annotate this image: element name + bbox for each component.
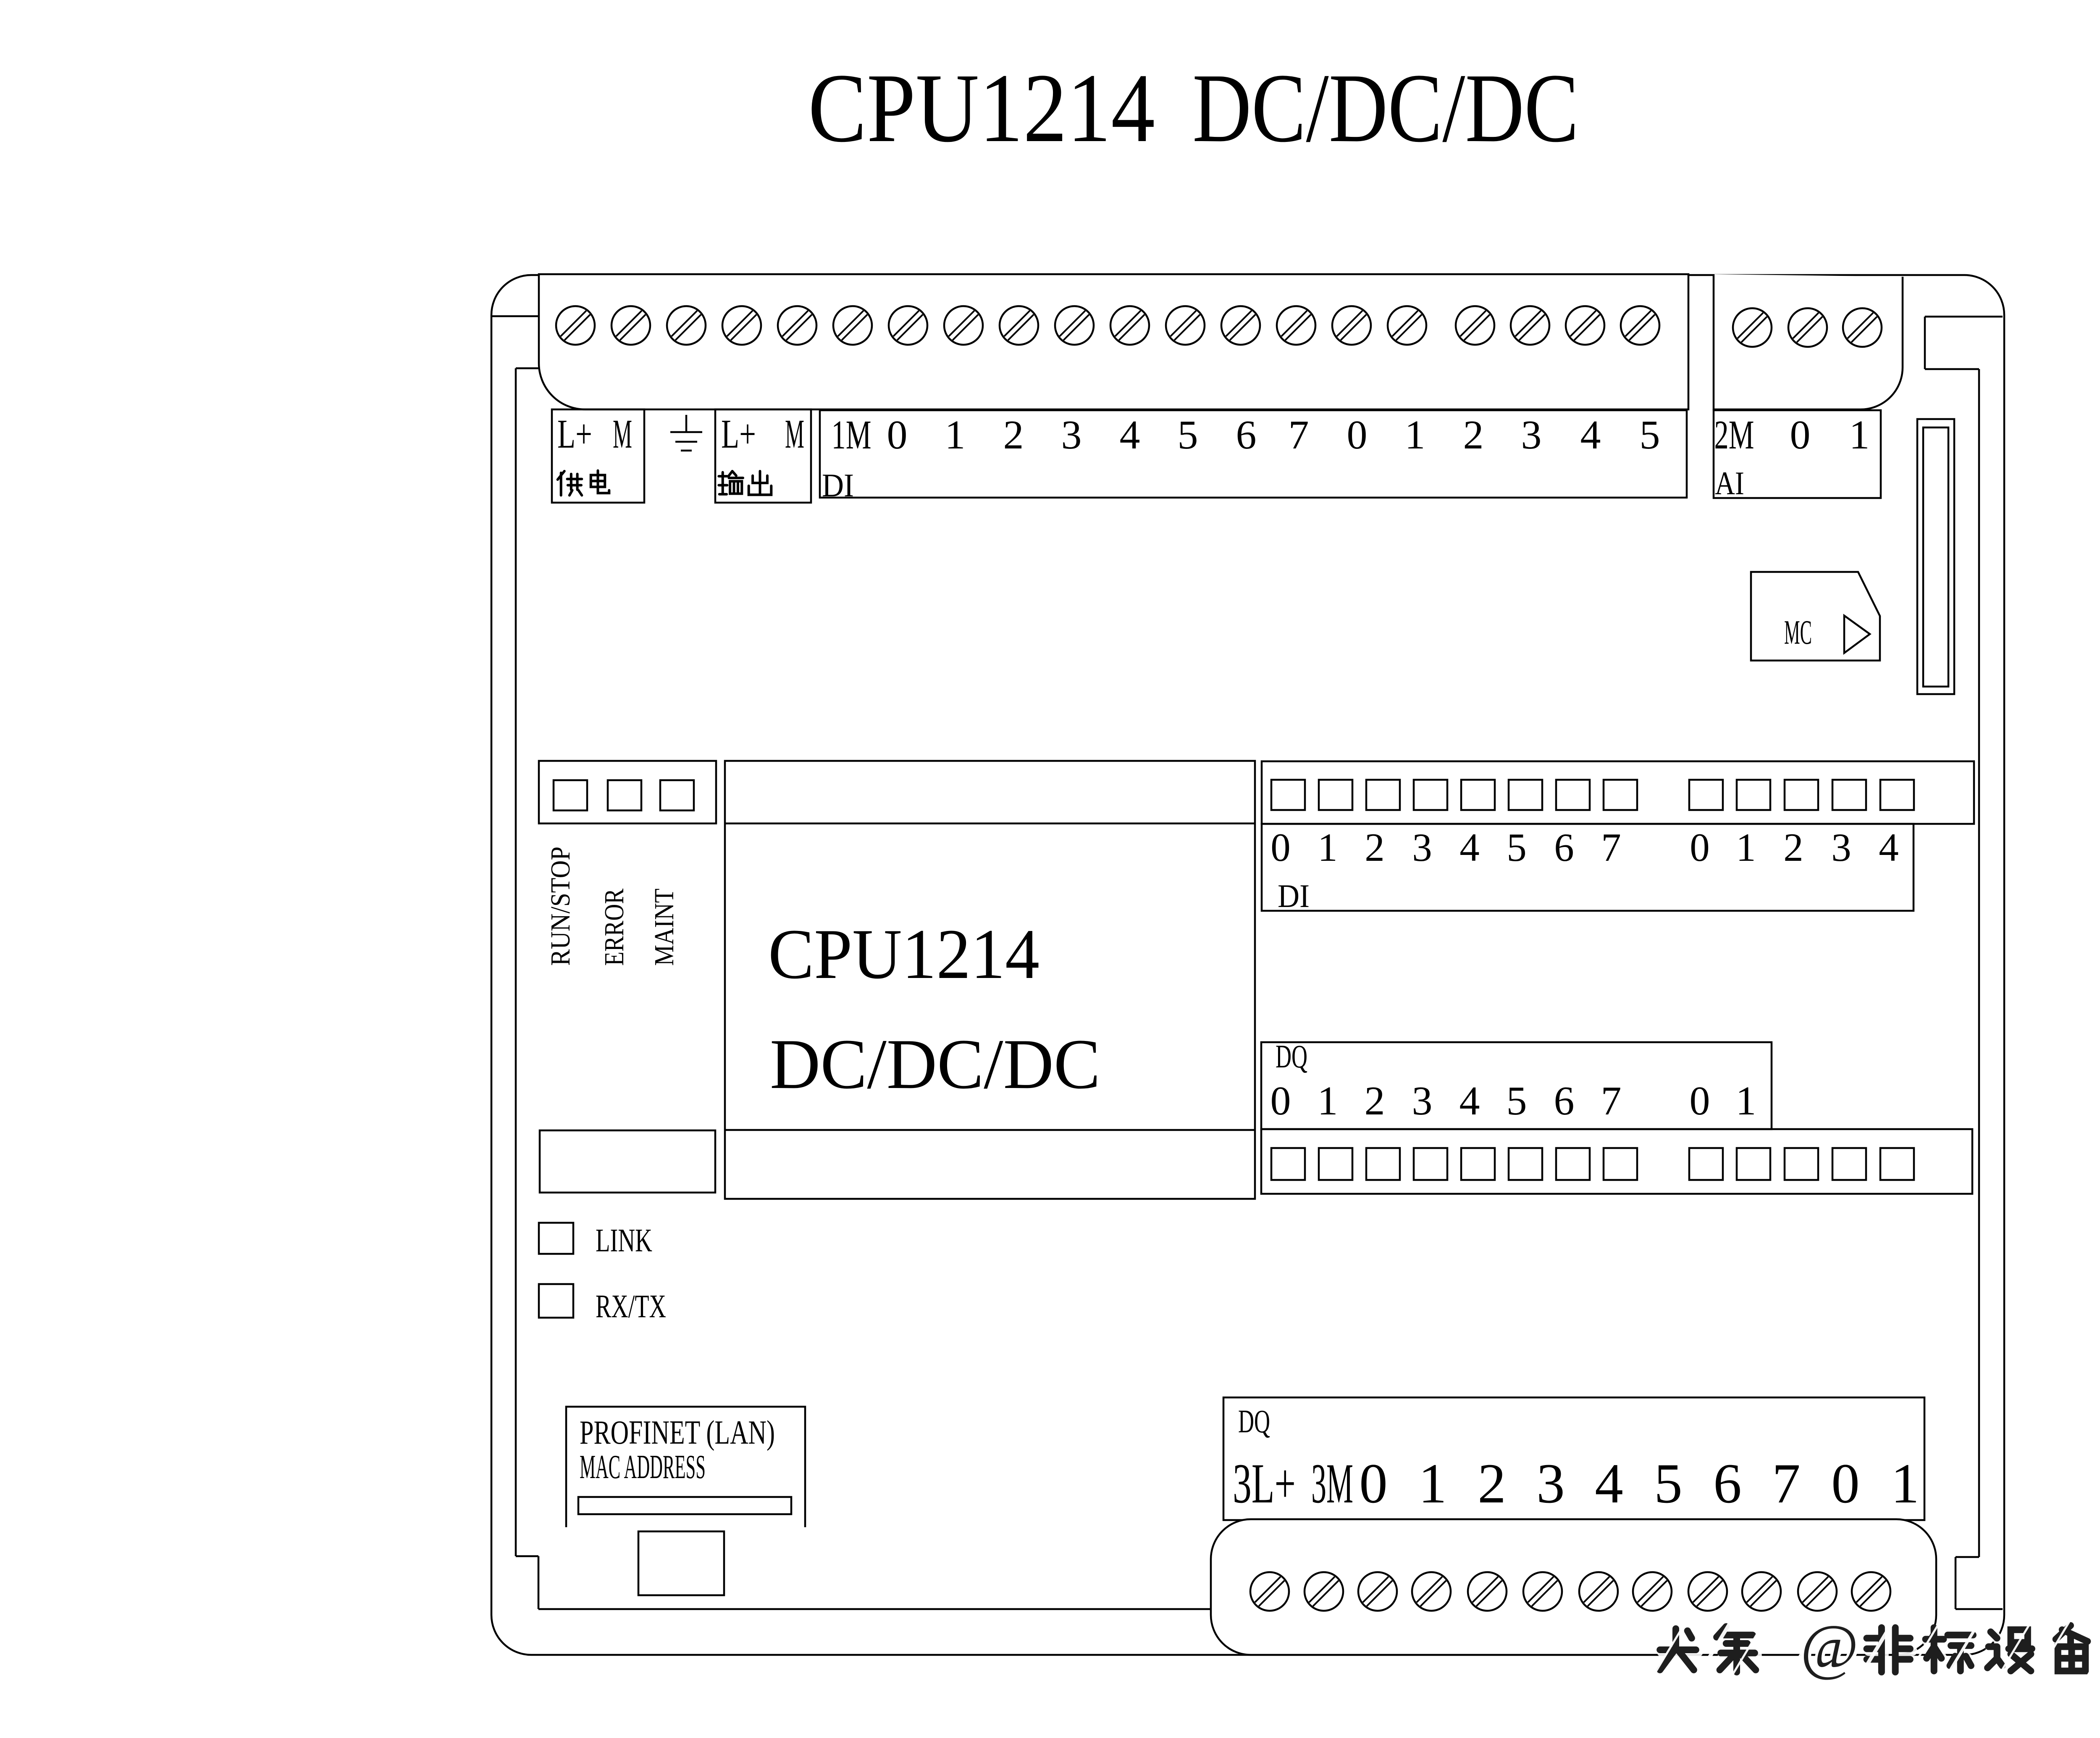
svg-text:3: 3 <box>1831 825 1851 870</box>
svg-text:DQ: DQ <box>1276 1038 1307 1075</box>
svg-text:1: 1 <box>1891 1452 1919 1515</box>
svg-text:0: 0 <box>1347 412 1368 458</box>
svg-text:4: 4 <box>1580 412 1601 458</box>
svg-text:L+: L+ <box>721 412 756 457</box>
svg-text:2: 2 <box>1463 412 1484 458</box>
svg-text:CPU1214: CPU1214 <box>768 915 1039 994</box>
svg-text:1: 1 <box>1736 1078 1756 1124</box>
svg-text:5: 5 <box>1654 1452 1683 1515</box>
svg-text:MAC ADDRESS: MAC ADDRESS <box>580 1449 706 1486</box>
svg-text:ERROR: ERROR <box>599 889 630 966</box>
svg-text:3: 3 <box>1061 412 1082 458</box>
svg-text:5: 5 <box>1640 412 1660 458</box>
svg-text:DC/DC/DC: DC/DC/DC <box>1192 53 1579 163</box>
svg-text:3: 3 <box>1536 1452 1565 1515</box>
svg-text:1: 1 <box>1418 1452 1447 1515</box>
svg-text:L+: L+ <box>557 412 592 457</box>
svg-text:1M: 1M <box>832 412 871 458</box>
svg-text:0: 0 <box>1270 825 1291 870</box>
svg-text:7: 7 <box>1289 412 1309 458</box>
svg-text:0: 0 <box>887 412 908 458</box>
svg-text:2: 2 <box>1478 1452 1506 1515</box>
svg-text:1: 1 <box>1318 825 1338 870</box>
svg-text:4: 4 <box>1879 825 1899 870</box>
svg-text:DI: DI <box>822 467 854 503</box>
svg-text:2: 2 <box>1783 825 1803 870</box>
svg-text:6: 6 <box>1554 825 1574 870</box>
svg-text:0: 0 <box>1690 1078 1710 1124</box>
svg-text:2: 2 <box>1365 1078 1385 1124</box>
svg-text:6: 6 <box>1554 1078 1575 1124</box>
svg-text:0: 0 <box>1270 1078 1291 1124</box>
svg-text:3M: 3M <box>1311 1452 1353 1515</box>
svg-text:3: 3 <box>1521 412 1542 458</box>
svg-text:0: 0 <box>1790 412 1811 458</box>
svg-text:RX/TX: RX/TX <box>596 1288 666 1324</box>
svg-text:7: 7 <box>1601 1078 1622 1124</box>
svg-text:DI: DI <box>1278 878 1310 914</box>
svg-text:7: 7 <box>1772 1452 1801 1515</box>
svg-text:1: 1 <box>945 412 966 458</box>
svg-text:@: @ <box>1801 1612 1858 1682</box>
svg-text:2: 2 <box>1365 825 1385 870</box>
svg-text:6: 6 <box>1236 412 1257 458</box>
svg-text:5: 5 <box>1507 825 1527 870</box>
svg-text:1: 1 <box>1405 412 1425 458</box>
svg-text:5: 5 <box>1507 1078 1527 1124</box>
svg-text:0: 0 <box>1831 1452 1860 1515</box>
svg-text:2: 2 <box>1003 412 1024 458</box>
svg-text:5: 5 <box>1178 412 1198 458</box>
svg-text:2M: 2M <box>1714 412 1754 458</box>
svg-text:3L+: 3L+ <box>1233 1452 1296 1515</box>
svg-text:DQ: DQ <box>1238 1403 1270 1439</box>
svg-text:0: 0 <box>1359 1452 1388 1515</box>
svg-text:4: 4 <box>1120 412 1140 458</box>
svg-text:6: 6 <box>1713 1452 1742 1515</box>
svg-text:RUN/STOP: RUN/STOP <box>545 847 576 966</box>
svg-text:MC: MC <box>1784 613 1812 651</box>
svg-text:MAINT: MAINT <box>649 889 680 966</box>
svg-text:LINK: LINK <box>596 1222 652 1258</box>
svg-text:1: 1 <box>1318 1078 1338 1124</box>
svg-text:0: 0 <box>1690 825 1710 870</box>
svg-text:CPU1214: CPU1214 <box>808 53 1155 163</box>
svg-text:4: 4 <box>1459 825 1480 870</box>
svg-text:3: 3 <box>1412 1078 1433 1124</box>
svg-text:4: 4 <box>1459 1078 1480 1124</box>
svg-text:M: M <box>613 412 632 457</box>
svg-text:M: M <box>785 412 804 457</box>
svg-text:1: 1 <box>1849 412 1870 458</box>
svg-text:PROFINET (LAN): PROFINET (LAN) <box>580 1414 775 1451</box>
svg-text:7: 7 <box>1601 825 1621 870</box>
svg-text:3: 3 <box>1412 825 1432 870</box>
svg-text:1: 1 <box>1736 825 1756 870</box>
svg-text:4: 4 <box>1595 1452 1623 1515</box>
svg-text:AI: AI <box>1715 465 1744 501</box>
svg-text:DC/DC/DC: DC/DC/DC <box>770 1025 1100 1104</box>
